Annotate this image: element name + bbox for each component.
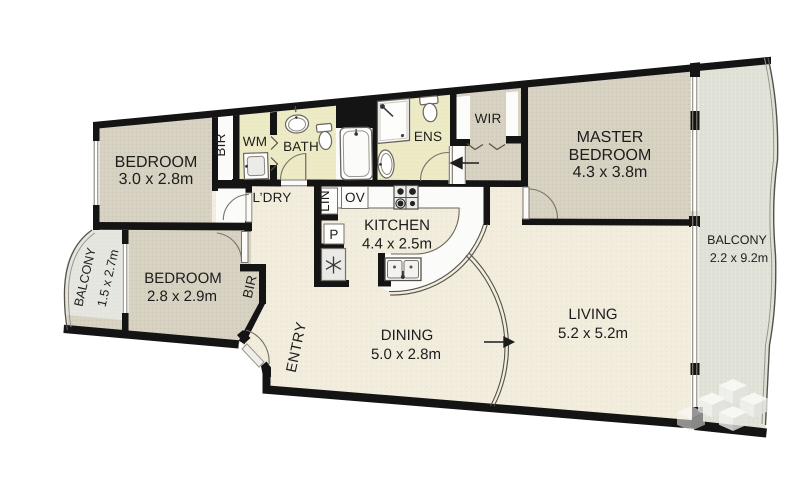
svg-text:WM: WM	[243, 134, 267, 149]
svg-text:BATH: BATH	[283, 139, 319, 154]
svg-text:LIVING: LIVING	[568, 306, 617, 323]
svg-text:DINING: DINING	[381, 327, 434, 344]
svg-text:BALCONY: BALCONY	[707, 233, 767, 247]
svg-text:BEDROOM: BEDROOM	[115, 154, 198, 171]
svg-text:2.2 x 9.2m: 2.2 x 9.2m	[710, 251, 768, 265]
svg-text:4.4 x 2.5m: 4.4 x 2.5m	[362, 236, 432, 253]
svg-text:P: P	[329, 227, 338, 242]
svg-text:5.2 x 5.2m: 5.2 x 5.2m	[558, 325, 628, 342]
svg-text:L’DRY: L’DRY	[252, 190, 291, 205]
svg-text:MASTER: MASTER	[577, 129, 644, 146]
svg-text:ENS: ENS	[414, 129, 442, 144]
svg-text:LIN: LIN	[317, 190, 332, 212]
svg-text:BEDROOM: BEDROOM	[144, 270, 222, 287]
svg-text:WIR: WIR	[475, 111, 502, 126]
svg-text:4.3 x 3.8m: 4.3 x 3.8m	[573, 164, 648, 181]
svg-text:5.0 x 2.8m: 5.0 x 2.8m	[371, 346, 441, 363]
svg-text:3.0 x 2.8m: 3.0 x 2.8m	[119, 171, 194, 188]
svg-text:KITCHEN: KITCHEN	[364, 217, 430, 234]
svg-text:OV: OV	[345, 190, 365, 205]
svg-text:2.8 x 2.9m: 2.8 x 2.9m	[147, 288, 217, 305]
svg-text:BEDROOM: BEDROOM	[569, 147, 652, 164]
svg-text:BIR: BIR	[213, 133, 228, 156]
